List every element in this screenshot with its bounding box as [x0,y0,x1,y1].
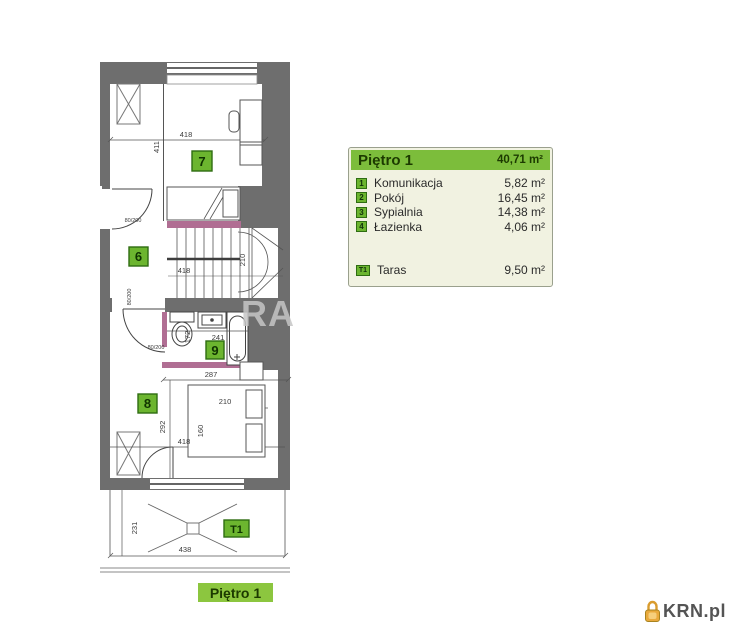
room-label-t1: T1 [224,520,249,537]
krn-logo: KRN.pl [644,600,726,623]
legend-total-area: 40,71 m² [497,154,543,166]
floor-plan-drawing: 418 411 418 210 241 172 287 210 160 292 … [0,0,740,636]
legend-table: Piętro 1 40,71 m² 1 Komunikacja 5,82 m² … [348,147,553,287]
room-area: 4,06 m² [504,220,545,234]
dim-438: 438 [179,545,192,554]
terrace [100,490,290,572]
padlock-icon [644,600,661,623]
room-label-8: 8 [138,394,157,413]
dim-231: 231 [130,522,139,535]
svg-text:6: 6 [135,249,142,264]
dim-418-top: 418 [180,130,193,139]
door-size-a: 80/200 [125,218,142,224]
svg-text:7: 7 [198,154,205,169]
room-name: Łazienka [374,220,504,234]
dim-418-room8: 418 [178,437,191,446]
room-label-9: 9 [206,341,224,359]
dim-287: 287 [205,370,218,379]
stairs [167,228,283,298]
floor-title-badge: Piętro 1 [198,583,273,602]
room-number-badge: 2 [356,192,367,203]
svg-text:9: 9 [211,343,218,358]
room-number-badge: 4 [356,221,367,232]
floorplan-page: 418 411 418 210 241 172 287 210 160 292 … [0,0,740,636]
door-size-b: 80/200 [127,289,133,306]
room-label-6: 6 [129,247,148,266]
toilet-icon [170,312,194,322]
room-area: 9,50 m² [504,263,545,277]
dim-292: 292 [158,421,167,434]
room-area: 16,45 m² [498,191,545,205]
room-number-badge: T1 [356,265,370,276]
legend-row: 3 Sypialnia 14,38 m² [356,205,545,220]
legend-row: 2 Pokój 16,45 m² [356,191,545,206]
room-area: 5,82 m² [504,176,545,190]
door-size-c: 80/200 [148,345,165,351]
room-area: 14,38 m² [498,205,545,219]
dim-210-bed: 210 [219,397,232,406]
room-name: Komunikacja [374,176,504,190]
bedroom8-furniture [188,362,265,457]
legend-row-taras: T1 Taras 9,50 m² [356,263,545,278]
svg-text:T1: T1 [230,524,243,536]
svg-text:8: 8 [144,396,151,411]
legend-header: Piętro 1 40,71 m² [351,150,550,170]
legend-row: 1 Komunikacja 5,82 m² [356,176,545,191]
floor-title: Piętro 1 [210,585,261,601]
watermark: RA [241,293,291,335]
room-name: Sypialnia [374,205,498,219]
room-name: Taras [377,263,504,277]
legend-row: 4 Łazienka 4,06 m² [356,220,545,235]
krn-logo-text: KRN.pl [663,601,726,622]
dim-210-stairs: 210 [238,254,247,267]
dim-418-stairs: 418 [178,266,191,275]
nightstand-icon [240,362,263,380]
desk-chair-icon [229,111,239,132]
roof-window-icon [117,84,140,475]
dim-172: 172 [183,331,192,344]
room-number-badge: 1 [356,178,367,189]
room-number-badge: 3 [356,207,367,218]
legend-title: Piętro 1 [358,152,413,169]
dim-411: 411 [152,141,161,153]
dim-160: 160 [196,425,205,438]
room-label-7: 7 [192,151,212,171]
room-name: Pokój [374,191,498,205]
legend-rows: 1 Komunikacja 5,82 m² 2 Pokój 16,45 m² 3… [349,172,552,278]
